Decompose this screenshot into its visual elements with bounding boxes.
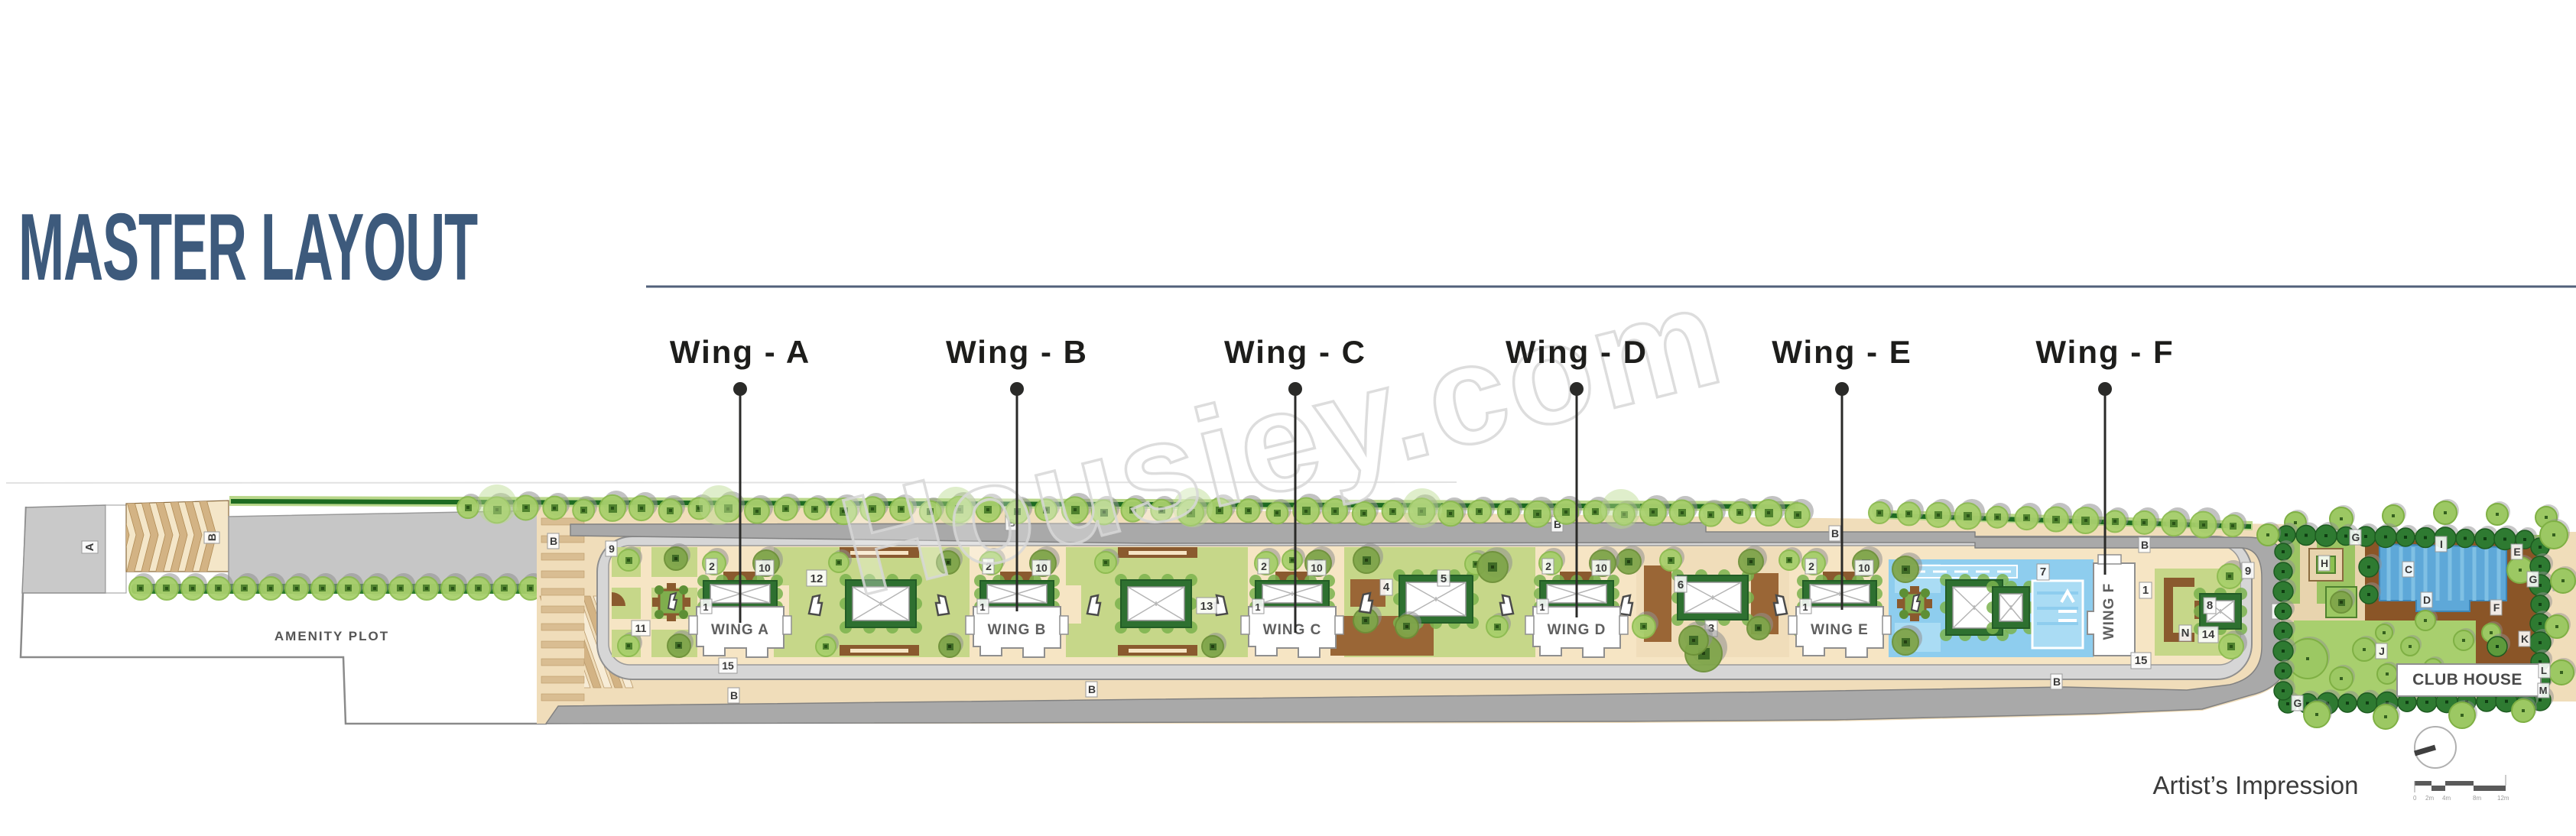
svg-text:1: 1 bbox=[1802, 601, 1808, 613]
svg-text:9: 9 bbox=[609, 543, 615, 555]
svg-text:0: 0 bbox=[2413, 795, 2417, 802]
svg-text:CLUB HOUSE: CLUB HOUSE bbox=[2412, 671, 2522, 689]
svg-text:8: 8 bbox=[2207, 599, 2213, 612]
svg-text:2: 2 bbox=[1808, 560, 1814, 572]
svg-text:10: 10 bbox=[759, 562, 771, 574]
svg-text:C: C bbox=[2405, 563, 2412, 575]
svg-text:10: 10 bbox=[1858, 562, 1870, 574]
svg-text:2: 2 bbox=[1545, 560, 1551, 572]
svg-text:K: K bbox=[2521, 633, 2529, 645]
svg-text:AMENITY PLOT: AMENITY PLOT bbox=[274, 629, 389, 643]
svg-text:B: B bbox=[206, 533, 218, 541]
svg-text:WING D: WING D bbox=[1548, 622, 1606, 638]
svg-text:M: M bbox=[2539, 685, 2548, 696]
svg-text:15: 15 bbox=[722, 659, 734, 672]
svg-text:B: B bbox=[550, 535, 557, 547]
svg-text:15: 15 bbox=[2135, 654, 2148, 667]
svg-text:B: B bbox=[1831, 527, 1839, 540]
svg-text:11: 11 bbox=[635, 622, 647, 634]
svg-text:1: 1 bbox=[703, 601, 708, 613]
svg-text:A: A bbox=[83, 543, 96, 551]
svg-text:D: D bbox=[2423, 594, 2431, 606]
svg-text:8m: 8m bbox=[2473, 795, 2481, 802]
svg-text:B: B bbox=[2141, 539, 2149, 551]
svg-text:Artist’s Impression: Artist’s Impression bbox=[2153, 771, 2359, 799]
svg-text:B: B bbox=[730, 689, 738, 702]
svg-text:Wing - D: Wing - D bbox=[1506, 334, 1648, 370]
svg-text:1: 1 bbox=[1255, 601, 1260, 613]
svg-text:Wing - B: Wing - B bbox=[946, 334, 1088, 370]
svg-text:Wing - A: Wing - A bbox=[670, 334, 810, 370]
svg-text:J: J bbox=[2379, 645, 2385, 657]
svg-text:2: 2 bbox=[709, 560, 715, 572]
svg-text:7: 7 bbox=[2040, 565, 2046, 578]
svg-text:2: 2 bbox=[1261, 560, 1267, 572]
svg-text:10: 10 bbox=[1311, 562, 1323, 574]
svg-text:Wing - F: Wing - F bbox=[2035, 334, 2174, 370]
svg-text:2m: 2m bbox=[2425, 795, 2434, 802]
svg-text:G: G bbox=[2294, 697, 2302, 709]
svg-text:1: 1 bbox=[2142, 584, 2149, 597]
svg-text:E: E bbox=[2513, 546, 2520, 558]
svg-text:4: 4 bbox=[1383, 581, 1390, 594]
svg-text:WING B: WING B bbox=[988, 622, 1047, 638]
svg-text:B: B bbox=[1088, 683, 1096, 695]
svg-text:WING A: WING A bbox=[711, 622, 769, 638]
svg-text:WING E: WING E bbox=[1811, 622, 1869, 638]
svg-text:4m: 4m bbox=[2442, 795, 2451, 802]
svg-text:1: 1 bbox=[1539, 601, 1545, 613]
svg-text:N: N bbox=[2181, 627, 2190, 640]
svg-text:9: 9 bbox=[2245, 565, 2251, 578]
svg-text:WING F: WING F bbox=[2101, 583, 2117, 640]
svg-text:12m: 12m bbox=[2497, 795, 2509, 802]
svg-text:1: 1 bbox=[979, 601, 985, 613]
svg-text:10: 10 bbox=[1595, 562, 1607, 574]
svg-text:G: G bbox=[2352, 531, 2360, 543]
svg-text:6: 6 bbox=[1678, 578, 1684, 591]
svg-text:L: L bbox=[2541, 665, 2547, 676]
svg-text:G: G bbox=[2529, 573, 2538, 585]
svg-text:WING C: WING C bbox=[1263, 622, 1322, 638]
svg-text:H: H bbox=[2321, 557, 2328, 569]
svg-text:Wing - C: Wing - C bbox=[1224, 334, 1366, 370]
svg-text:B: B bbox=[2053, 676, 2061, 688]
svg-text:12: 12 bbox=[810, 572, 823, 585]
svg-text:MASTER LAYOUT: MASTER LAYOUT bbox=[18, 195, 478, 300]
svg-text:F: F bbox=[2493, 601, 2500, 614]
svg-text:5: 5 bbox=[1441, 572, 1447, 585]
svg-text:13: 13 bbox=[1200, 600, 1213, 613]
svg-text:Wing - E: Wing - E bbox=[1772, 334, 1912, 370]
svg-text:I: I bbox=[2440, 538, 2443, 550]
svg-text:14: 14 bbox=[2202, 628, 2215, 641]
